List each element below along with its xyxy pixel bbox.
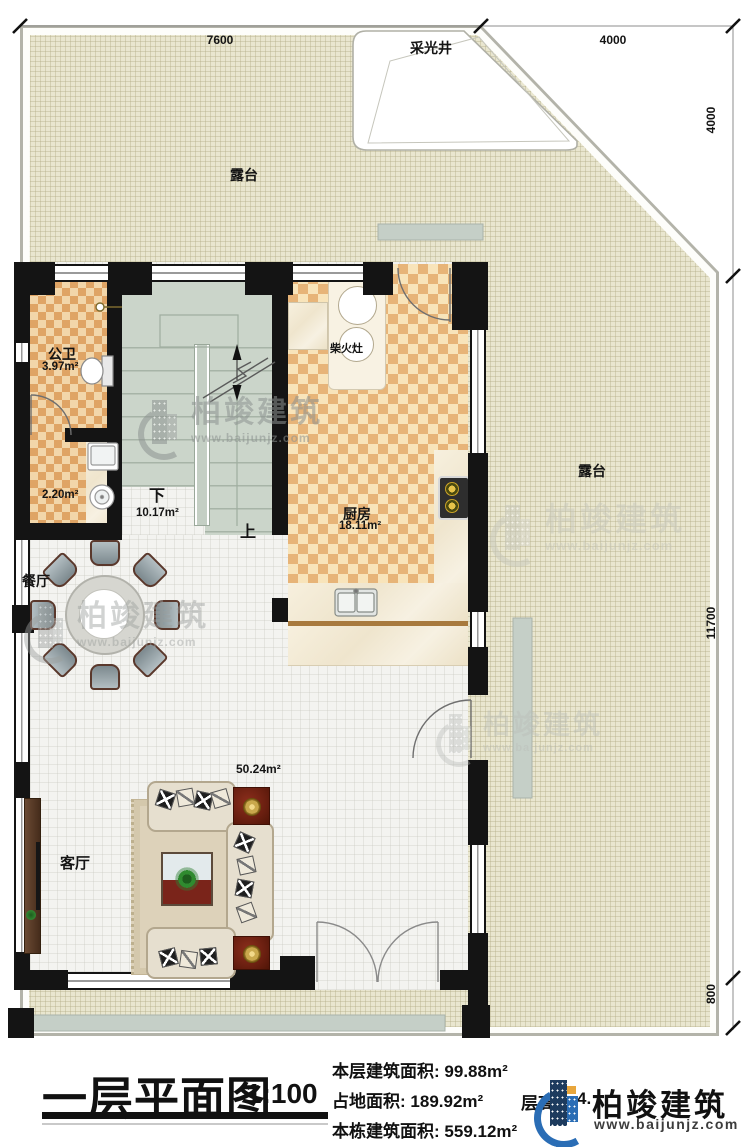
side-table-bottom [233,936,270,970]
dining-chair [90,540,120,566]
tv-icon [36,842,40,910]
basin-icon [90,485,114,509]
washer-icon [88,443,118,470]
sofa-pillow [158,947,179,968]
stat-value: 559.12m² [444,1122,517,1141]
living-area: 50.24m² [236,762,281,776]
sofa-right [226,822,274,942]
sofa-pillow [233,831,255,853]
sofa-pillow [210,788,231,809]
plan-scale: 1:100 [246,1078,318,1110]
dining-label: 餐厅 [22,571,50,591]
terrace-door [413,700,471,758]
utility-area: 2.20m² [42,489,78,501]
dining-chair [154,600,180,630]
dining-chair [90,664,120,690]
bathroom-door [31,395,71,435]
side-table-medallion [243,798,261,816]
stairs-down-label: 下 [149,482,165,506]
stat-value: 189.92m² [410,1092,483,1111]
towel-hook-icon [96,303,122,311]
company-logo-icon [534,1078,588,1136]
dining-table [65,575,145,655]
stat-building-area: 本栋建筑面积: 559.12m² [332,1117,517,1142]
entry-double-door [317,922,438,982]
floor-plan-canvas: 7600 4000 4000 11700 800 采光井 露台 露台 [0,0,750,1147]
stair-break-line [203,358,275,402]
sofa-bottom [146,927,236,979]
stat-footprint-area: 占地面积: 189.92m² [332,1087,483,1112]
dining-chair [30,600,56,630]
coffee-table-plant [175,867,199,891]
stat-floor-area: 本层建筑面积: 99.88m² [332,1057,508,1082]
stat-value: 99.88m² [444,1062,507,1081]
sofa-pillow [155,789,176,810]
stairs-area: 10.17m² [136,507,179,519]
stat-label: 本栋建筑面积: [332,1122,440,1141]
living-label: 客厅 [60,852,90,873]
sofa-pillow [236,902,258,924]
title-underline-thick [42,1112,328,1119]
side-table-top [233,787,270,825]
stat-label: 占地面积: [332,1092,406,1111]
title-underline-thin [42,1123,328,1125]
kitchen-door [398,268,450,322]
kitchen-area: 18.11m² [339,520,381,532]
stat-label: 本层建筑面积: [332,1062,440,1081]
dining-table-top [79,589,129,639]
sofa-pillow [176,788,196,808]
bathroom-area: 3.97m² [42,361,78,373]
side-table-medallion [243,945,261,963]
sofa-pillow [179,950,198,969]
coffee-table [161,852,213,906]
wood-stove-label: 柴火灶 [330,340,363,356]
cabinet-plant-icon [26,910,36,920]
sofa-pillow [236,855,256,875]
fixtures-and-doors [0,0,750,1147]
toilet-icon [81,356,113,386]
stairs-up-label: 上 [240,518,256,542]
sofa-pillow [235,879,255,899]
company-logo-url: www.baijunjz.com [594,1116,739,1132]
kitchen-sink-icon [335,589,377,616]
sofa-top [147,781,236,832]
sofa-pillow [199,947,218,966]
stair-upper-landing [160,315,238,347]
